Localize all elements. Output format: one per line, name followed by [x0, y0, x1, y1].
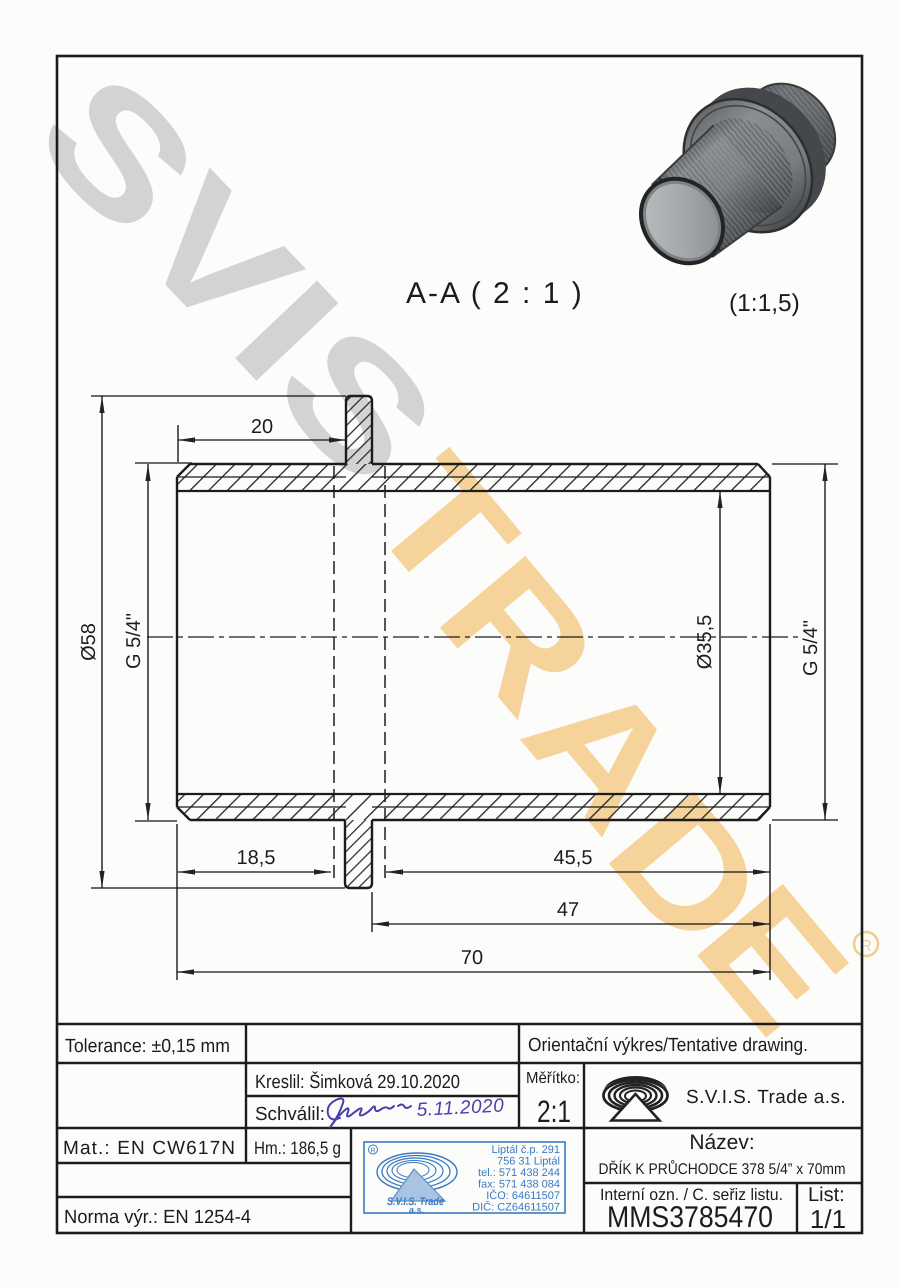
svg-text:MMS3785470: MMS3785470 — [607, 1201, 773, 1234]
svg-text:G 5/4": G 5/4" — [123, 613, 145, 669]
svg-text:Kreslil: Šimková 29.10.2020: Kreslil: Šimková 29.10.2020 — [255, 1071, 460, 1093]
svg-text:R: R — [370, 1148, 375, 1155]
svg-text:Mat.: EN CW617N: Mat.: EN CW617N — [63, 1138, 235, 1159]
svg-text:Název:: Název: — [689, 1131, 754, 1154]
svg-text:Orientační výkres/Tentative dr: Orientační výkres/Tentative drawing. — [528, 1035, 808, 1056]
svg-text:A-A ( 2 : 1 ): A-A ( 2 : 1 ) — [406, 277, 584, 310]
svg-text:Hm.: 186,5 g: Hm.: 186,5 g — [254, 1138, 341, 1158]
svg-text:a.s.: a.s. — [409, 1205, 424, 1215]
svg-text:47: 47 — [557, 899, 579, 921]
svg-text:G 5/4": G 5/4" — [800, 620, 822, 676]
svg-text:20: 20 — [251, 416, 273, 438]
svg-text:fax: 571 438 084: fax: 571 438 084 — [478, 1179, 560, 1191]
svg-text:45,5: 45,5 — [554, 847, 593, 869]
svg-text:Tolerance: ±0,15 mm: Tolerance: ±0,15 mm — [65, 1036, 230, 1057]
svg-text:List:: List: — [808, 1184, 845, 1206]
svg-text:DŘÍK K PRŮCHODCE 378 5/4” x 70: DŘÍK K PRŮCHODCE 378 5/4” x 70mm — [599, 1159, 846, 1178]
svg-text:DIČ: CZ64611507: DIČ: CZ64611507 — [472, 1201, 560, 1214]
svg-text:756 31 Liptál: 756 31 Liptál — [497, 1156, 560, 1168]
svg-text:Norma výr.: EN 1254-4: Norma výr.: EN 1254-4 — [64, 1207, 251, 1228]
svg-text:Schválil:: Schválil: — [255, 1104, 325, 1125]
svg-text:Měřítko:: Měřítko: — [526, 1070, 580, 1087]
svg-text:Ø58: Ø58 — [78, 623, 100, 661]
svg-text:2:1: 2:1 — [537, 1094, 571, 1129]
svg-text:S.V.I.S. Trade a.s.: S.V.I.S. Trade a.s. — [686, 1087, 846, 1108]
svg-text:70: 70 — [461, 947, 483, 969]
svg-text:(1:1,5): (1:1,5) — [729, 290, 800, 317]
svg-text:1/1: 1/1 — [810, 1204, 846, 1234]
svg-text:18,5: 18,5 — [237, 847, 276, 869]
svg-text:tel.: 571 438 244: tel.: 571 438 244 — [478, 1167, 560, 1179]
svg-text:IČO: 64611507: IČO: 64611507 — [486, 1189, 560, 1202]
svg-text:Liptál č.p. 291: Liptál č.p. 291 — [492, 1144, 561, 1156]
svg-text:Ø35,5: Ø35,5 — [694, 615, 716, 669]
